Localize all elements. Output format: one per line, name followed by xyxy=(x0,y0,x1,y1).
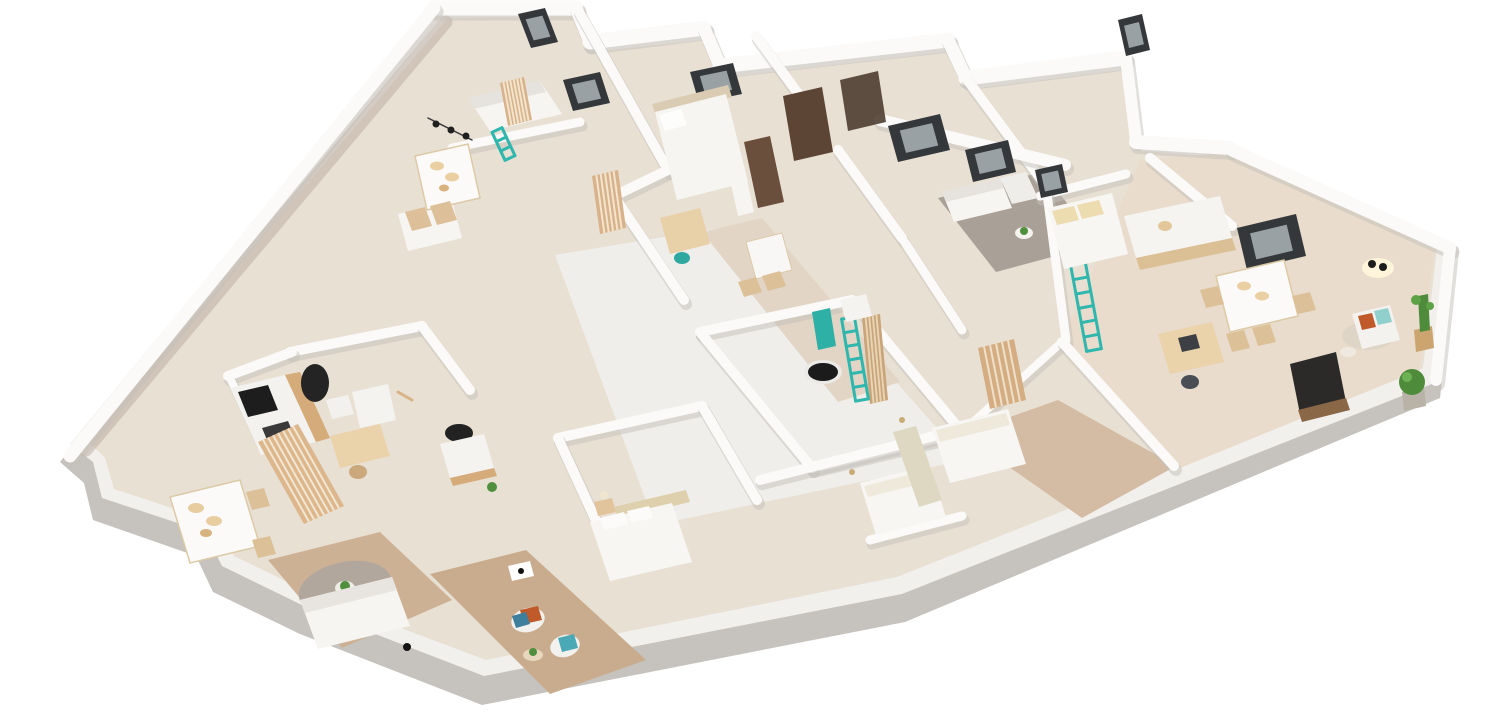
unitB-teal-chair xyxy=(674,252,690,264)
unitA-bowl xyxy=(439,185,449,192)
unitE-plate-2 xyxy=(206,516,222,526)
bedroom1-sconce xyxy=(899,417,905,423)
window-unitC-top xyxy=(1118,14,1150,56)
unitA-track-light-1 xyxy=(433,121,440,128)
unitA-plate-2 xyxy=(445,173,459,182)
unitF-table-plant xyxy=(529,648,537,656)
unitA-plate-1 xyxy=(430,162,444,171)
unitC-plant xyxy=(1020,227,1028,235)
floor-plan-canvas xyxy=(0,0,1500,719)
unitD-plant-bush-highlight xyxy=(1402,372,1412,382)
unitD-plant-bush xyxy=(1399,369,1425,395)
window-unitC-3 xyxy=(1035,164,1068,198)
unitF-wall-art-dot xyxy=(518,568,524,574)
unitD-plate-1 xyxy=(1237,282,1251,291)
unitD-kitchen-item xyxy=(1158,221,1172,231)
unitD-cactus-leaf-2 xyxy=(1426,302,1434,310)
unitD-wall-lamp-1 xyxy=(1368,260,1376,268)
unitD-plate-2 xyxy=(1255,292,1269,301)
bedroom2-sconce xyxy=(849,469,855,475)
unitA-track-light-3 xyxy=(463,133,470,140)
outer-wall-top-e xyxy=(1136,142,1232,152)
outer-wall-top-a xyxy=(434,8,578,12)
unitD-desk-chair xyxy=(1181,375,1199,389)
unitE-tub xyxy=(352,384,396,428)
unitF-lamp xyxy=(600,491,608,499)
unitD-wall-lamp-glow xyxy=(1362,258,1394,278)
unitD-side-table xyxy=(1340,347,1356,357)
terrace-sconce xyxy=(403,643,411,651)
unitE-desk-chair xyxy=(349,465,367,479)
floor-plan-3d-render xyxy=(0,0,1500,719)
unitE-bath-mirror xyxy=(301,364,329,402)
unitA-track-light-2 xyxy=(448,127,455,134)
unitF-bath-plant xyxy=(487,482,497,492)
unitE-plate-1 xyxy=(188,503,204,513)
core-toilet xyxy=(808,363,838,381)
door-recess xyxy=(840,71,886,131)
unitD-wall-lamp-2 xyxy=(1379,263,1387,271)
unitE-bowl xyxy=(200,529,212,537)
unitD-cactus-leaf-1 xyxy=(1411,295,1421,305)
